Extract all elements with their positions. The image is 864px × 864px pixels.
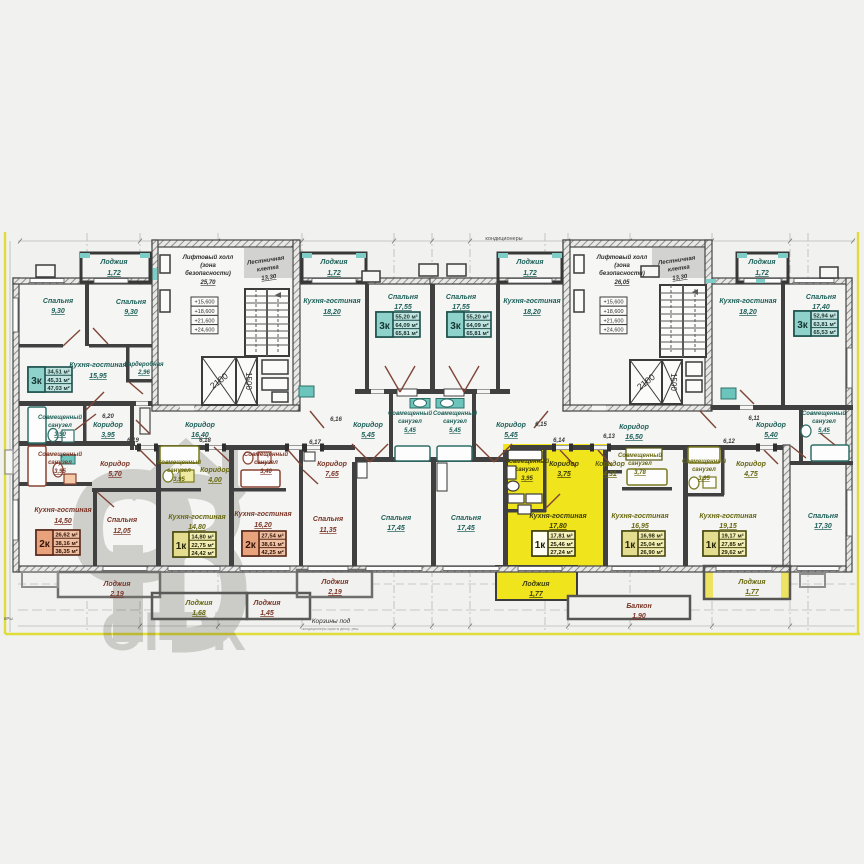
svg-text:Лоджия: Лоджия xyxy=(253,599,281,607)
svg-text:6,15: 6,15 xyxy=(535,422,547,428)
svg-text:санузел: санузел xyxy=(515,467,539,473)
svg-text:19,15: 19,15 xyxy=(719,523,737,530)
svg-text:Коридор: Коридор xyxy=(100,460,130,468)
svg-text:3,95: 3,95 xyxy=(101,432,115,439)
svg-text:17,55: 17,55 xyxy=(394,304,412,311)
svg-text:+21,600: +21,600 xyxy=(194,318,214,324)
svg-text:6,14: 6,14 xyxy=(553,438,565,444)
svg-text:27,24 м²: 27,24 м² xyxy=(550,549,572,556)
svg-text:Коридор: Коридор xyxy=(549,460,579,468)
svg-text:17,55: 17,55 xyxy=(452,304,470,311)
svg-text:3,95: 3,95 xyxy=(521,476,533,482)
svg-text:55,20 м²: 55,20 м² xyxy=(395,314,417,321)
svg-text:1,77: 1,77 xyxy=(745,589,760,596)
svg-text:Кухня-гостиная: Кухня-гостиная xyxy=(719,298,776,305)
svg-text:65,53 м²: 65,53 м² xyxy=(813,329,835,336)
svg-text:2к: 2к xyxy=(39,539,51,550)
svg-text:11,35: 11,35 xyxy=(320,527,337,534)
svg-text:1,77: 1,77 xyxy=(529,591,544,598)
svg-text:5,45: 5,45 xyxy=(361,432,375,439)
svg-text:Совмещенный: Совмещенный xyxy=(388,410,432,417)
svg-text:санузел: санузел xyxy=(48,460,72,466)
svg-text:6,18: 6,18 xyxy=(199,438,211,444)
svg-text:(зона: (зона xyxy=(200,263,216,269)
svg-text:27,54 м²: 27,54 м² xyxy=(261,533,283,540)
svg-text:1500: 1500 xyxy=(244,372,253,390)
svg-text:+21,600: +21,600 xyxy=(603,318,623,324)
svg-text:26,90 м²: 26,90 м² xyxy=(640,549,662,556)
svg-text:Кухня-гостиная: Кухня-гостиная xyxy=(503,298,560,305)
svg-text:38,16 м²: 38,16 м² xyxy=(55,540,77,547)
svg-text:14,80 м²: 14,80 м² xyxy=(191,534,213,541)
svg-text:Спальня: Спальня xyxy=(107,517,137,524)
svg-text:Совмещенный: Совмещенный xyxy=(802,410,846,417)
svg-text:17,45: 17,45 xyxy=(387,525,405,532)
svg-text:+18,600: +18,600 xyxy=(194,309,214,315)
svg-text:1,90: 1,90 xyxy=(632,613,646,620)
svg-text:Лоджия: Лоджия xyxy=(516,258,544,266)
svg-text:34,51 м²: 34,51 м² xyxy=(47,369,69,376)
svg-text:Лифтовый холл: Лифтовый холл xyxy=(596,254,648,261)
svg-text:17,81 м²: 17,81 м² xyxy=(550,533,572,540)
svg-text:1к: 1к xyxy=(535,540,547,551)
svg-text:17,40: 17,40 xyxy=(812,304,830,311)
svg-text:3к: 3к xyxy=(450,321,462,332)
svg-text:санузел: санузел xyxy=(398,419,422,425)
svg-text:9,30: 9,30 xyxy=(124,309,138,316)
svg-text:Лоджия: Лоджия xyxy=(321,578,349,586)
svg-text:3,78: 3,78 xyxy=(634,470,646,476)
svg-text:16,95: 16,95 xyxy=(631,523,649,530)
svg-text:Кухня-гостиная: Кухня-гостиная xyxy=(69,362,126,369)
svg-text:санузел: санузел xyxy=(443,419,467,425)
svg-text:3к: 3к xyxy=(379,321,391,332)
svg-text:5,45: 5,45 xyxy=(404,428,416,434)
svg-text:3,95: 3,95 xyxy=(54,469,66,475)
svg-text:Лоджия: Лоджия xyxy=(748,258,776,266)
svg-text:+15,600: +15,600 xyxy=(194,300,214,306)
svg-text:1к: 1к xyxy=(176,541,188,552)
svg-text:25,46 м²: 25,46 м² xyxy=(550,541,572,548)
svg-text:15,95: 15,95 xyxy=(89,373,107,380)
svg-text:65,81 м²: 65,81 м² xyxy=(466,330,488,337)
svg-text:27,85 м²: 27,85 м² xyxy=(721,541,743,548)
svg-text:64,09 м²: 64,09 м² xyxy=(395,322,417,329)
svg-text:6,13: 6,13 xyxy=(603,434,615,440)
svg-text:Совмещенный: Совмещенный xyxy=(433,410,477,417)
svg-text:17,80: 17,80 xyxy=(549,523,567,530)
svg-text:Коридор: Коридор xyxy=(185,421,215,429)
svg-text:Корзины под: Корзины под xyxy=(312,617,351,625)
svg-text:29,62 м²: 29,62 м² xyxy=(721,549,743,556)
svg-text:4,75: 4,75 xyxy=(743,471,758,478)
svg-text:+24,600: +24,600 xyxy=(194,328,214,334)
svg-text:7,65: 7,65 xyxy=(325,471,339,478)
svg-text:санузел: санузел xyxy=(628,461,652,467)
svg-text:Коридор: Коридор xyxy=(756,421,786,429)
svg-text:Коридор: Коридор xyxy=(200,466,230,474)
svg-text:кондиционеры скрыты декор. реш: кондиционеры скрыты декор. реш. xyxy=(303,627,360,631)
svg-text:5,45: 5,45 xyxy=(504,432,518,439)
svg-text:14,50: 14,50 xyxy=(54,518,72,525)
svg-text:38,35 м²: 38,35 м² xyxy=(55,548,77,555)
svg-text:Совмещенный: Совмещенный xyxy=(38,414,82,421)
svg-text:16,50: 16,50 xyxy=(625,434,643,441)
svg-text:Спальня: Спальня xyxy=(313,516,343,523)
svg-text:3,75: 3,75 xyxy=(557,471,571,478)
svg-text:19,17 м²: 19,17 м² xyxy=(721,533,743,540)
svg-text:6,12: 6,12 xyxy=(723,439,735,445)
svg-text:+15,600: +15,600 xyxy=(603,300,623,306)
svg-text:Совмещенный: Совмещенный xyxy=(505,458,549,465)
svg-text:5,40: 5,40 xyxy=(764,432,778,439)
svg-text:Коридор: Коридор xyxy=(353,421,383,429)
svg-text:18,20: 18,20 xyxy=(323,309,341,316)
svg-text:Коридор: Коридор xyxy=(619,423,649,431)
svg-text:25,04 м²: 25,04 м² xyxy=(640,541,662,548)
svg-text:Гардеробная: Гардеробная xyxy=(124,361,164,368)
svg-text:Совмещенный: Совмещенный xyxy=(244,451,288,458)
svg-text:Кухня-гостиная: Кухня-гостиная xyxy=(611,513,668,520)
svg-text:Кухня-гостиная: Кухня-гостиная xyxy=(234,511,291,518)
svg-text:16,20: 16,20 xyxy=(254,522,272,529)
svg-text:Спальня: Спальня xyxy=(43,298,73,305)
svg-text:2,19: 2,19 xyxy=(109,591,124,598)
svg-text:санузел: санузел xyxy=(692,467,716,473)
svg-text:3,90: 3,90 xyxy=(54,432,66,438)
svg-text:6,11: 6,11 xyxy=(748,416,760,422)
svg-text:6,19: 6,19 xyxy=(127,438,139,444)
svg-text:45,31 м²: 45,31 м² xyxy=(47,377,69,384)
svg-text:2к: 2к xyxy=(245,540,257,551)
svg-text:25,70: 25,70 xyxy=(199,280,216,286)
svg-text:4,00: 4,00 xyxy=(207,477,222,484)
svg-text:Совмещенный: Совмещенный xyxy=(682,458,726,465)
svg-text:17,45: 17,45 xyxy=(457,525,475,532)
svg-text:1к: 1к xyxy=(706,540,718,551)
svg-text:16,98 м²: 16,98 м² xyxy=(640,533,662,540)
svg-text:Кухня-гостиная: Кухня-гостиная xyxy=(529,513,586,520)
svg-text:Кухня-гостиная: Кухня-гостиная xyxy=(699,513,756,520)
svg-text:вРы: вРы xyxy=(4,616,13,621)
svg-text:санузел: санузел xyxy=(254,460,278,466)
svg-text:Лоджия: Лоджия xyxy=(185,599,213,607)
svg-text:Совмещенный: Совмещенный xyxy=(618,452,662,459)
svg-text:6,16: 6,16 xyxy=(330,417,342,423)
svg-text:26,05: 26,05 xyxy=(613,280,630,286)
svg-text:Лоджия: Лоджия xyxy=(522,580,550,588)
svg-text:22,75 м²: 22,75 м² xyxy=(191,542,213,549)
svg-text:санузел: санузел xyxy=(812,419,836,425)
svg-text:1500: 1500 xyxy=(669,373,678,391)
svg-text:1,45: 1,45 xyxy=(260,610,274,617)
svg-text:Спальня: Спальня xyxy=(446,294,476,301)
svg-text:5,45: 5,45 xyxy=(818,428,830,434)
svg-text:65,81 м²: 65,81 м² xyxy=(395,330,417,337)
svg-text:3,95: 3,95 xyxy=(173,477,185,483)
svg-text:Совмещенный: Совмещенный xyxy=(38,451,82,458)
svg-text:Кухня-гостиная: Кухня-гостиная xyxy=(34,507,91,514)
svg-text:38,61 м²: 38,61 м² xyxy=(261,541,283,548)
svg-text:24,42 м²: 24,42 м² xyxy=(191,550,213,557)
svg-text:14,80: 14,80 xyxy=(188,524,206,531)
svg-text:1,72: 1,72 xyxy=(755,270,769,277)
svg-text:Лифтовый холл: Лифтовый холл xyxy=(182,254,234,261)
svg-text:Спальня: Спальня xyxy=(381,515,411,522)
svg-text:Коридор: Коридор xyxy=(496,421,526,429)
svg-text:Лоджия: Лоджия xyxy=(103,580,131,588)
svg-text:Балкон: Балкон xyxy=(626,603,652,610)
svg-text:3,95: 3,95 xyxy=(698,476,710,482)
svg-text:2,19: 2,19 xyxy=(327,589,342,596)
svg-text:Совмещенный: Совмещенный xyxy=(157,459,201,466)
svg-text:Коридор: Коридор xyxy=(317,460,347,468)
svg-text:Спальня: Спальня xyxy=(806,294,836,301)
svg-text:1,68: 1,68 xyxy=(192,610,206,617)
svg-text:17,30: 17,30 xyxy=(814,523,832,530)
svg-text:1,72: 1,72 xyxy=(327,270,341,277)
svg-text:18,20: 18,20 xyxy=(739,309,757,316)
svg-text:52,94 м²: 52,94 м² xyxy=(813,313,835,320)
svg-text:Лоджия: Лоджия xyxy=(100,258,128,266)
svg-text:6,17: 6,17 xyxy=(309,440,321,446)
svg-text:Кухня-гостиная: Кухня-гостиная xyxy=(168,514,225,521)
svg-text:3к: 3к xyxy=(31,376,43,387)
svg-text:6,20: 6,20 xyxy=(102,414,114,420)
svg-text:Коридор: Коридор xyxy=(93,421,123,429)
svg-text:1,72: 1,72 xyxy=(107,270,121,277)
svg-text:55,20 м²: 55,20 м² xyxy=(466,314,488,321)
svg-text:1к: 1к xyxy=(625,540,637,551)
svg-text:5,45: 5,45 xyxy=(449,428,461,434)
svg-text:Коридор: Коридор xyxy=(595,460,625,468)
svg-text:(зона: (зона xyxy=(614,263,630,269)
svg-text:Кухня-гостиная: Кухня-гостиная xyxy=(303,298,360,305)
svg-text:47,03 м²: 47,03 м² xyxy=(47,385,69,392)
svg-text:2,96: 2,96 xyxy=(137,370,150,376)
svg-text:Лоджия: Лоджия xyxy=(320,258,348,266)
svg-text:Коридор: Коридор xyxy=(736,460,766,468)
svg-text:санузел: санузел xyxy=(48,423,72,429)
svg-text:Спальня: Спальня xyxy=(388,294,418,301)
svg-text:3к: 3к xyxy=(797,320,809,331)
svg-text:9,30: 9,30 xyxy=(51,308,65,315)
svg-text:+24,600: +24,600 xyxy=(603,328,623,334)
svg-text:Лоджия: Лоджия xyxy=(738,578,766,586)
svg-text:ОГРК: ОГРК xyxy=(101,600,246,662)
svg-text:Спальня: Спальня xyxy=(808,513,838,520)
svg-text:+18,600: +18,600 xyxy=(603,309,623,315)
svg-text:кондиционеры: кондиционеры xyxy=(485,236,522,242)
svg-text:18,20: 18,20 xyxy=(523,309,541,316)
svg-text:4,31: 4,31 xyxy=(602,471,617,478)
svg-text:Спальня: Спальня xyxy=(116,299,146,306)
svg-text:санузел: санузел xyxy=(167,468,191,474)
svg-text:12,05: 12,05 xyxy=(113,528,131,535)
svg-text:1,72: 1,72 xyxy=(523,270,537,277)
svg-text:безопасности): безопасности) xyxy=(185,270,231,277)
svg-text:26,62 м²: 26,62 м² xyxy=(55,532,77,539)
svg-text:42,25 м²: 42,25 м² xyxy=(261,549,283,556)
svg-text:63,81 м²: 63,81 м² xyxy=(813,321,835,328)
svg-text:безопасности): безопасности) xyxy=(599,270,645,277)
svg-text:64,09 м²: 64,09 м² xyxy=(466,322,488,329)
svg-text:5,70: 5,70 xyxy=(108,471,122,478)
svg-text:3,40: 3,40 xyxy=(260,469,272,475)
svg-text:Спальня: Спальня xyxy=(451,515,481,522)
